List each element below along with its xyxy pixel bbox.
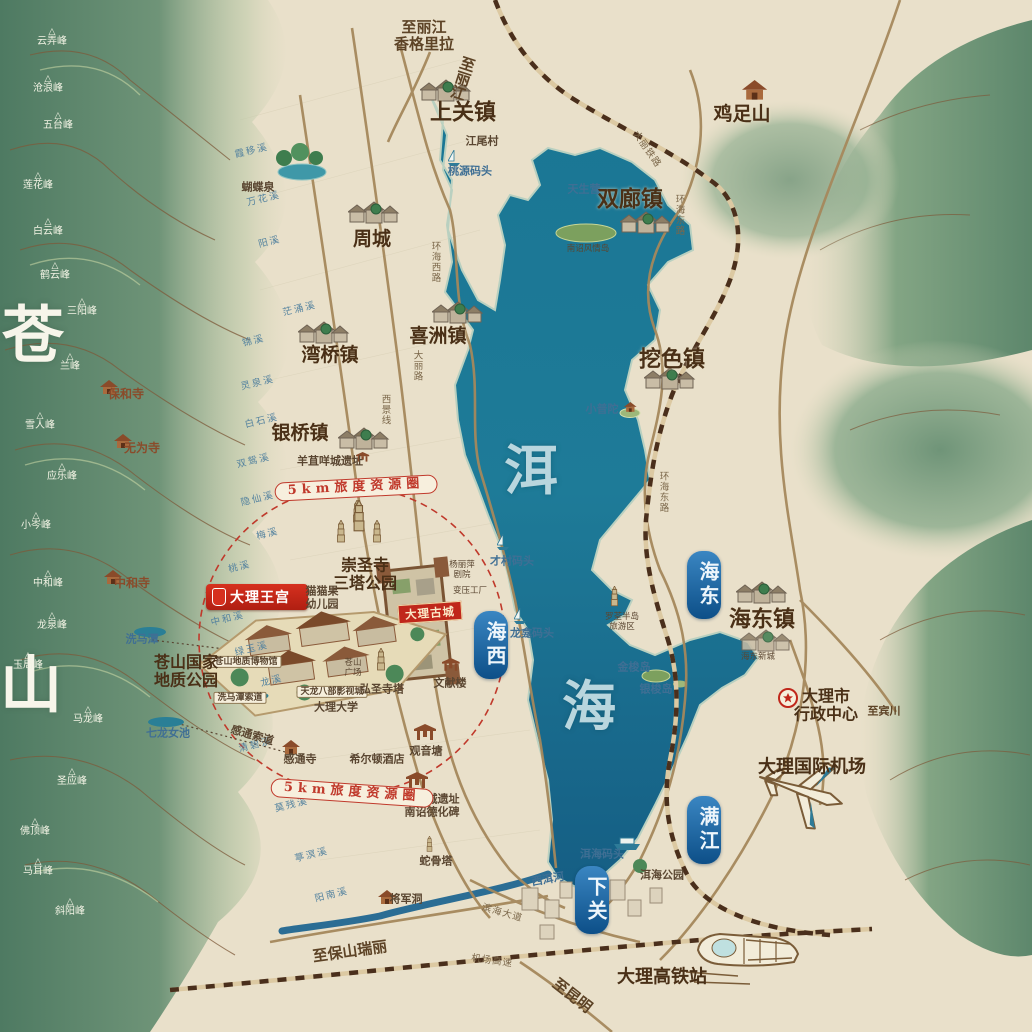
resort-logo: 大理王宫 <box>206 584 308 610</box>
qilongnv-pool <box>148 717 184 727</box>
dali-erhai-map: 大理王宫 大理古城 苍山洱海海西海东满江下关上关镇周城喜洲镇湾桥镇银桥镇双廊镇挖… <box>0 0 1032 1032</box>
resort-logo-text: 大理王宫 <box>230 587 290 607</box>
government-star-icon <box>779 689 797 707</box>
cangshan-mountains <box>0 0 289 1032</box>
resort-seal-icon <box>212 588 226 606</box>
ximatan-pool <box>134 627 166 637</box>
map-artwork <box>0 0 1032 1032</box>
